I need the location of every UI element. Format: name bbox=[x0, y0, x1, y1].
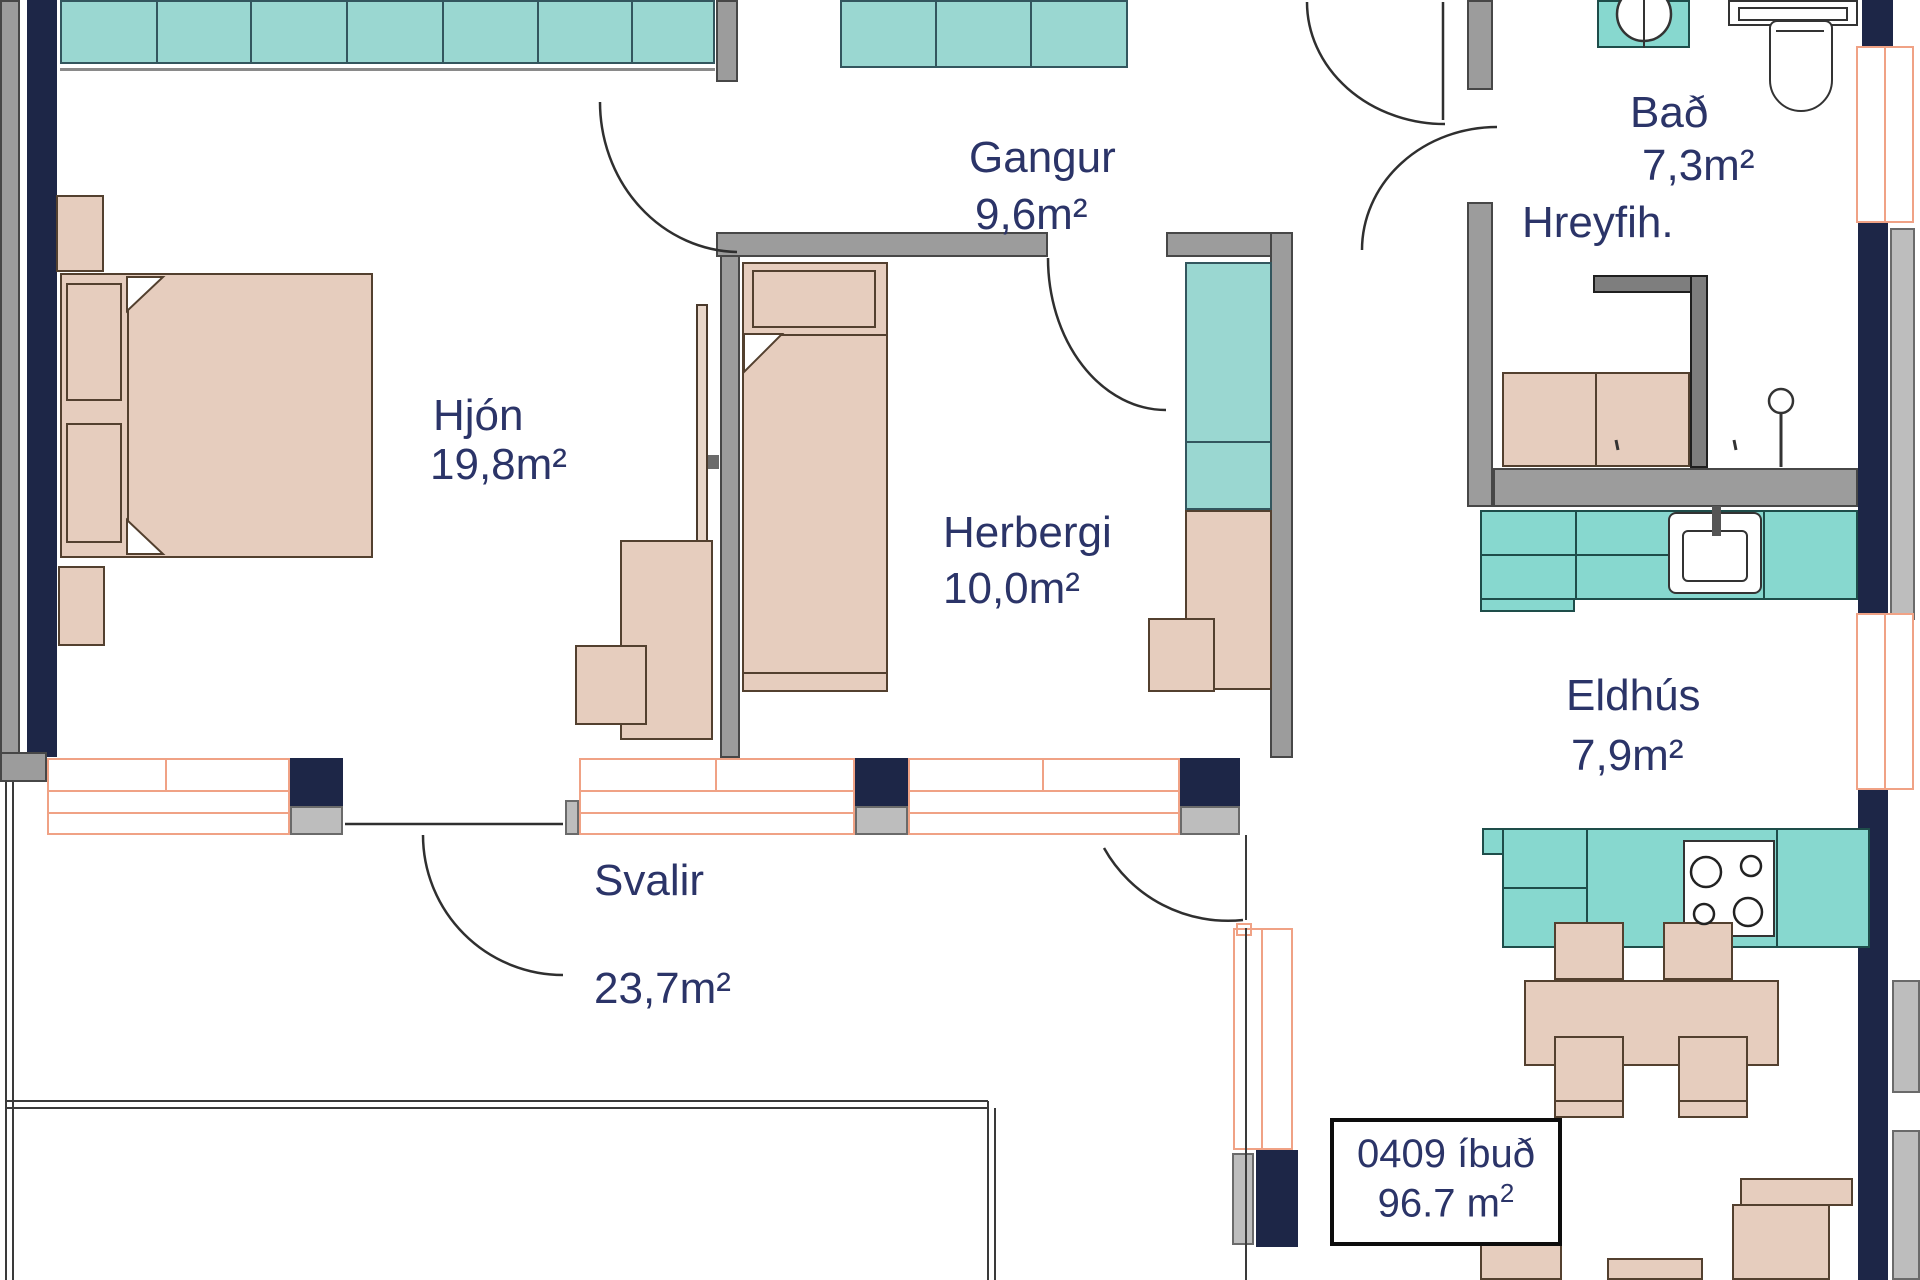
bathroom-accessibility-label: Hreyfih. bbox=[1522, 200, 1674, 246]
room-label-gangur-name: Gangur bbox=[969, 135, 1116, 181]
room-label-herbergi-area: 10,0m² bbox=[943, 566, 1080, 612]
room-label-svalir-name: Svalir bbox=[594, 858, 704, 904]
door-arc-bathroom bbox=[1362, 127, 1497, 250]
door-arc-entry-outer bbox=[1307, 2, 1445, 124]
unit-area-unit: m bbox=[1467, 1181, 1500, 1225]
room-label-herbergi-name: Herbergi bbox=[943, 510, 1112, 556]
cushion-ticks bbox=[1616, 440, 1736, 450]
sink-basin-circle bbox=[1617, 0, 1671, 48]
stove-burners bbox=[1691, 856, 1762, 926]
room-label-bad-name: Bað bbox=[1630, 90, 1708, 136]
unit-info-box: 0409 íbuð 96.7 m2 bbox=[1330, 1118, 1562, 1246]
balcony-slab-edge bbox=[7, 1101, 995, 1280]
floor-lamp bbox=[1769, 389, 1793, 467]
room-label-eldhus-area: 7,9m² bbox=[1571, 733, 1683, 779]
unit-id-text: 0409 íbuð bbox=[1334, 1130, 1558, 1178]
unit-area-exponent: 2 bbox=[1500, 1178, 1514, 1208]
door-arc-hjon bbox=[600, 102, 737, 252]
door-arc-herbergi bbox=[1048, 258, 1166, 410]
room-label-hjon-name: Hjón bbox=[433, 393, 524, 439]
unit-area-text: 96.7 m2 bbox=[1334, 1178, 1558, 1227]
room-label-gangur-area: 9,6m² bbox=[975, 192, 1087, 238]
plan-linework bbox=[0, 0, 1920, 1280]
floor-plan: Hjón 19,8m² Gangur 9,6m² Herbergi 10,0m²… bbox=[0, 0, 1920, 1280]
room-label-bad-area: 7,3m² bbox=[1642, 143, 1754, 189]
balcony-rail-left bbox=[6, 782, 13, 1280]
unit-area-value: 96.7 bbox=[1378, 1181, 1456, 1225]
room-label-hjon-area: 19,8m² bbox=[430, 442, 567, 488]
room-label-svalir-area: 23,7m² bbox=[594, 966, 731, 1012]
room-label-eldhus-name: Eldhús bbox=[1566, 673, 1701, 719]
door-arc-balcony bbox=[345, 824, 563, 975]
door-arc-dining-balcony bbox=[1104, 848, 1243, 921]
